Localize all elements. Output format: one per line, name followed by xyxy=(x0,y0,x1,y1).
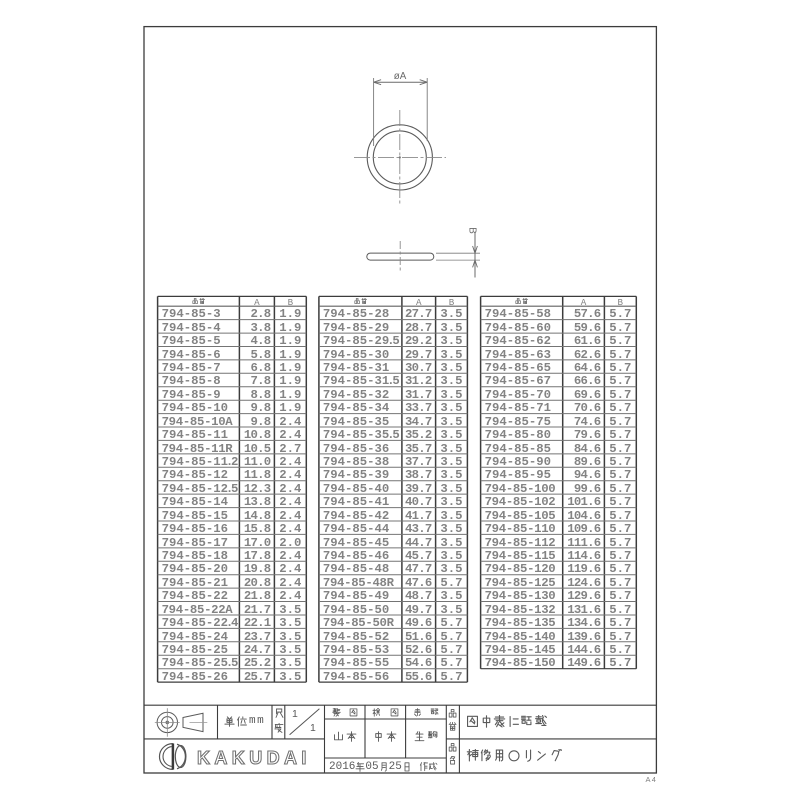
svg-text:B: B xyxy=(467,227,478,234)
